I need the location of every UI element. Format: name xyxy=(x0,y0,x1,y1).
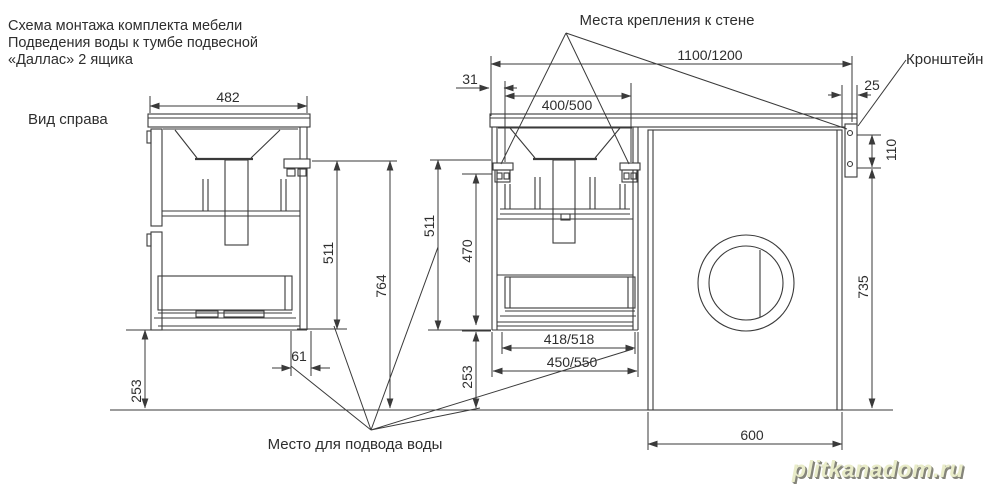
washing-machine xyxy=(648,130,842,410)
dim-washer-width: 600 xyxy=(740,427,764,443)
dim-edge-gap: 31 xyxy=(462,71,478,87)
mount-bracket-block xyxy=(287,169,295,176)
dim-washer-height: 735 xyxy=(855,275,871,299)
vanity-cabinet-front-view xyxy=(492,127,640,330)
bolt xyxy=(504,173,509,179)
dim-mount-to-floor: 764 xyxy=(373,274,389,298)
sink-basin xyxy=(163,129,298,158)
dim-drain-offset: 61 xyxy=(291,348,307,364)
left-cabinet-side-view xyxy=(147,114,310,330)
slide-block xyxy=(196,311,218,317)
countertop-slab xyxy=(148,114,310,127)
drawer-front-lower xyxy=(151,232,162,330)
drawer-bottom-lines xyxy=(497,277,636,322)
screw-hole xyxy=(848,131,853,136)
bolt xyxy=(624,173,629,179)
dim-overall-width: 1100/1200 xyxy=(677,47,742,63)
countertop-slab xyxy=(490,114,857,127)
drawer-bottom-lines xyxy=(154,276,296,318)
drawing-canvas: Схема монтажа комплекта мебели Подведени… xyxy=(0,0,1000,488)
mount-bracket-right xyxy=(620,163,640,170)
bracket-label: Кронштейн xyxy=(906,51,983,68)
mount-bracket xyxy=(284,159,310,168)
lower-drawer-box xyxy=(158,276,292,310)
drain-pipe xyxy=(553,160,575,243)
handle-notch xyxy=(147,131,151,143)
bracket-leader-line xyxy=(858,60,906,126)
wall-bracket xyxy=(845,124,857,177)
washer-door-inner xyxy=(709,246,783,320)
washer-door-outer xyxy=(698,235,794,331)
countertop-front-view xyxy=(490,114,857,127)
dim-clearance-front: 253 xyxy=(459,365,475,389)
handle-notch xyxy=(147,234,151,246)
lower-drawer-box xyxy=(505,277,635,308)
side-view-label: Вид справа xyxy=(28,111,108,128)
mount-bracket-block xyxy=(298,169,306,176)
dim-mount-spacing: 400/500 xyxy=(542,97,593,113)
slide-block xyxy=(224,311,264,317)
dim-height-to-mount-left: 511 xyxy=(320,242,336,265)
dim-height-to-mount-front: 511 xyxy=(421,215,437,238)
title-line-3: «Даллас» 2 ящика xyxy=(8,52,134,68)
dim-inner-width: 418/518 xyxy=(544,331,595,347)
installation-diagram: Схема монтажа комплекта мебели Подведени… xyxy=(0,0,1000,488)
drawer-front-upper xyxy=(151,129,162,226)
water-supply-label: Место для подвода воды xyxy=(268,436,443,453)
screw-hole xyxy=(848,162,853,167)
title-line-2: Подведения воды к тумбе подвесной xyxy=(8,35,258,51)
dim-clearance-left: 253 xyxy=(128,379,144,403)
dim-depth: 482 xyxy=(216,89,240,105)
sink-basin xyxy=(498,128,632,158)
drain-pipe xyxy=(225,160,248,245)
dim-inner-height: 470 xyxy=(459,239,475,263)
washer-side-lines xyxy=(653,130,837,410)
mount-bracket-left xyxy=(493,163,513,170)
dim-bracket-holes: 110 xyxy=(883,139,899,162)
dim-overhang: 25 xyxy=(864,77,880,93)
wall-mount-points-label: Места крепления к стене xyxy=(579,12,754,29)
washer-body xyxy=(648,130,842,410)
title-line-1: Схема монтажа комплекта мебели xyxy=(8,18,242,34)
watermark: plitkanadom.ru xyxy=(792,456,1000,483)
bolt xyxy=(497,173,502,179)
